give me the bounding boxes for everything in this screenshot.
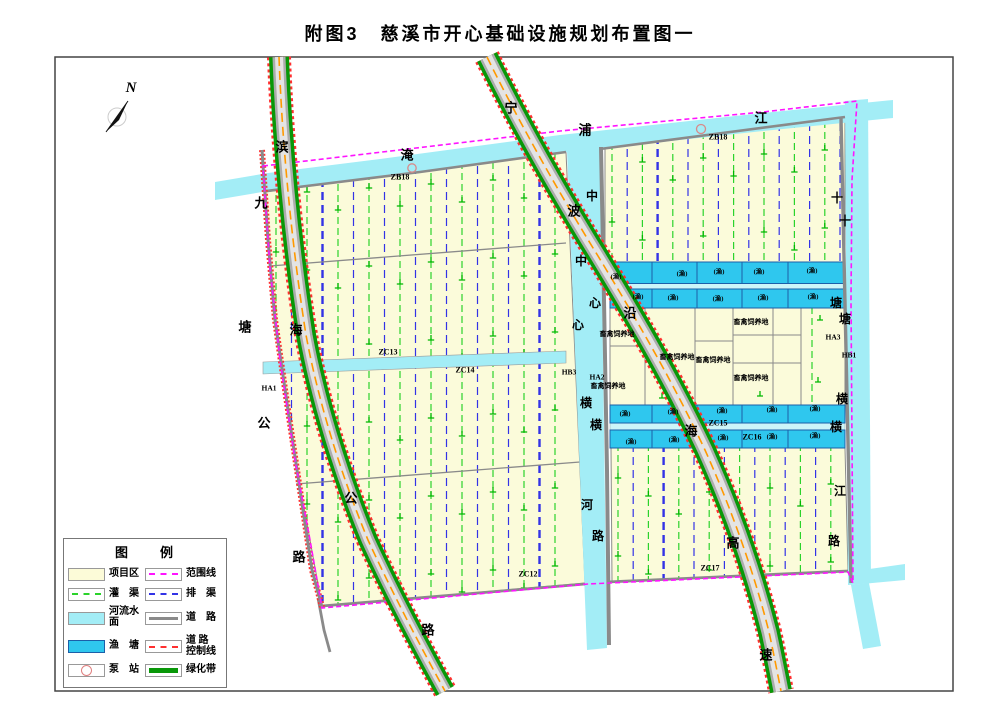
- fish-pond: [652, 262, 697, 284]
- map-label: (渔): [626, 437, 637, 446]
- legend-item-label: 渔 塘: [109, 641, 139, 652]
- map-label: 横: [830, 419, 843, 434]
- legend-item-boundary-line: 范围线: [145, 568, 222, 581]
- legend-item-label: 道 路: [186, 613, 216, 624]
- map-label: 横: [580, 395, 593, 410]
- planning-map-page: 附图3 慈溪市开心基础设施规划布置图一 N滨海公路九塘公路宁波沿海高速淹浦江中中…: [0, 0, 1000, 725]
- map-label: (渔): [807, 266, 818, 275]
- road-swatch-icon: [145, 612, 182, 625]
- map-label: HA3: [826, 333, 841, 342]
- map-label: 江: [754, 111, 767, 126]
- boundary-line-swatch-icon: [145, 568, 182, 581]
- map-label: (渔): [669, 435, 680, 444]
- map-label: (渔): [767, 432, 778, 441]
- map-label: (渔): [714, 267, 725, 276]
- drainage-canal-swatch-icon: [145, 588, 182, 601]
- map-label: (渔): [717, 406, 728, 415]
- map-label: 中: [586, 188, 598, 203]
- legend-item-label: 范围线: [186, 569, 216, 580]
- legend-item-pump-station: 泵 站: [68, 664, 145, 677]
- map-label: 公: [257, 416, 270, 431]
- map-label: 海: [684, 424, 697, 439]
- map-label: HA2: [590, 373, 605, 382]
- map-label: 河: [580, 497, 593, 512]
- map-label: 速: [759, 648, 772, 663]
- map-label: 畜禽饲养地: [600, 329, 635, 338]
- map-label: 滨: [275, 140, 288, 155]
- fish-pond: [742, 405, 788, 423]
- project-area-swatch-icon: [68, 568, 105, 581]
- legend-item-river-surface: 河流水面: [68, 607, 145, 629]
- map-label: (渔): [808, 292, 819, 301]
- map-label: (渔): [677, 269, 688, 278]
- map-label: 海: [289, 323, 302, 338]
- legend-row: 项目区范围线: [68, 568, 222, 581]
- map-label: 心: [572, 318, 584, 332]
- map-label: 塘: [839, 311, 851, 326]
- map-label: ZC16: [742, 433, 761, 442]
- map-label: (渔): [754, 267, 765, 276]
- map-label: 畜禽饲养地: [591, 381, 626, 390]
- green-belt-swatch-icon: [145, 664, 182, 677]
- map-label: (渔): [718, 433, 729, 442]
- map-label: 淹: [400, 148, 414, 163]
- legend-item-label: 河流水面: [109, 607, 145, 629]
- legend-title: 图 例: [64, 542, 226, 561]
- map-label: 路: [421, 623, 435, 638]
- legend-item-irrigation-canal: 灌 渠: [68, 588, 145, 601]
- map-label: 沿: [623, 306, 636, 321]
- map-label: HA1: [262, 384, 277, 393]
- legend-row: 河流水面道 路: [68, 607, 222, 629]
- map-label: HB1: [842, 351, 857, 360]
- legend-item-road-control-line: 道 路 控制线: [145, 636, 222, 658]
- legend-item-label: 道 路 控制线: [186, 636, 216, 658]
- map-label: (渔): [620, 409, 631, 418]
- map-label: 江: [834, 483, 846, 498]
- map-label: 畜禽饲养地: [660, 352, 695, 361]
- legend-item-fish-pond: 渔 塘: [68, 640, 145, 653]
- north-label: N: [125, 80, 138, 96]
- legend-item-label: 泵 站: [109, 665, 139, 676]
- legend-row: 渔 塘道 路 控制线: [68, 636, 222, 658]
- legend: 图 例 项目区范围线灌 渠排 渠河流水面道 路渔 塘道 路 控制线泵 站绿化带: [63, 538, 227, 688]
- map-label: (渔): [611, 272, 622, 281]
- map-label: 宁: [504, 101, 517, 116]
- legend-item-project-area: 项目区: [68, 568, 145, 581]
- fish-pond: [610, 405, 652, 423]
- map-label: ZB18: [709, 133, 728, 142]
- map-label: 畜禽饲养地: [734, 373, 769, 382]
- legend-item-label: 绿化带: [186, 665, 216, 676]
- map-label: 十: [831, 190, 843, 205]
- legend-item-label: 项目区: [109, 569, 139, 580]
- map-label: (渔): [713, 294, 724, 303]
- legend-item-green-belt: 绿化带: [145, 664, 222, 677]
- map-label: ZB18: [391, 173, 410, 182]
- map-label: ZC17: [700, 564, 719, 573]
- map-label: (渔): [810, 404, 821, 413]
- map-label: (渔): [810, 431, 821, 440]
- map-label: (渔): [633, 292, 644, 301]
- map-label: 畜禽饲养地: [734, 317, 769, 326]
- map-label: (渔): [767, 405, 778, 414]
- map-label: 高: [726, 536, 739, 551]
- map-label: 横: [590, 417, 603, 432]
- map-label: 横: [836, 391, 849, 406]
- fish-pond-swatch-icon: [68, 640, 105, 653]
- map-label: 浦: [578, 123, 591, 138]
- map-label: HB3: [562, 368, 577, 377]
- map-label: (渔): [758, 293, 769, 302]
- map-label: 十: [839, 213, 851, 228]
- river-surface-swatch-icon: [68, 612, 105, 625]
- map-label: 路: [592, 528, 605, 543]
- legend-row: 泵 站绿化带: [68, 664, 222, 677]
- map-label: 九: [253, 196, 267, 211]
- road-control-line-swatch-icon: [145, 640, 182, 653]
- map-label: (渔): [668, 293, 679, 302]
- map-label: 畜禽饲养地: [696, 355, 731, 364]
- legend-item-label: 灌 渠: [109, 589, 139, 600]
- map-label: 中: [575, 253, 587, 268]
- map-label: 心: [589, 296, 601, 310]
- legend-item-road: 道 路: [145, 612, 222, 625]
- map-label: ZC12: [518, 570, 537, 579]
- legend-item-drainage-canal: 排 渠: [145, 588, 222, 601]
- map-label: ZC13: [378, 348, 397, 357]
- map-label: (渔): [668, 407, 679, 416]
- legend-item-label: 排 渠: [186, 589, 216, 600]
- map-label: 塘: [830, 295, 842, 310]
- fish-pond: [742, 262, 788, 284]
- map-label: 波: [567, 204, 581, 219]
- pump-station-swatch-icon: [68, 664, 105, 677]
- map-label: 路: [828, 533, 841, 548]
- map-label: 路: [292, 550, 306, 565]
- legend-rows: 项目区范围线灌 渠排 渠河流水面道 路渔 塘道 路 控制线泵 站绿化带: [64, 561, 226, 687]
- map-label: ZC15: [708, 419, 727, 428]
- map-label: ZC14: [455, 366, 474, 375]
- map-label: 公: [344, 491, 357, 506]
- irrigation-canal-swatch-icon: [68, 588, 105, 601]
- map-label: 塘: [238, 320, 251, 335]
- legend-row: 灌 渠排 渠: [68, 588, 222, 601]
